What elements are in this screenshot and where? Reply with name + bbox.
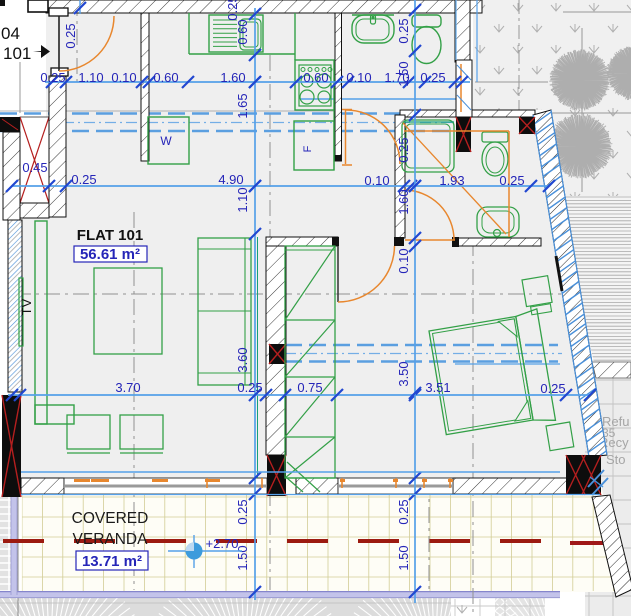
svg-text:1.50: 1.50: [396, 61, 411, 86]
svg-text:1.50: 1.50: [396, 545, 411, 570]
svg-text:1.10: 1.10: [235, 187, 250, 212]
svg-text:VERANDA: VERANDA: [73, 531, 149, 548]
svg-text:0.75: 0.75: [297, 380, 322, 395]
svg-text:TV: TV: [19, 298, 34, 315]
svg-text:0.25: 0.25: [237, 380, 262, 395]
svg-text:0.60: 0.60: [153, 70, 178, 85]
svg-text:56.61 m²: 56.61 m²: [80, 246, 140, 263]
svg-text:0.25: 0.25: [40, 70, 65, 85]
svg-text:0.25: 0.25: [499, 173, 524, 188]
svg-text:0.60: 0.60: [235, 19, 250, 44]
svg-text:1.60: 1.60: [396, 189, 411, 214]
svg-text:+2.70: +2.70: [206, 536, 239, 551]
svg-text:0.60: 0.60: [303, 70, 328, 85]
svg-text:1.10: 1.10: [78, 70, 103, 85]
svg-text:FLAT 101: FLAT 101: [77, 227, 143, 244]
svg-text:0.10: 0.10: [346, 70, 371, 85]
svg-text:1.60: 1.60: [220, 70, 245, 85]
svg-text:0.25: 0.25: [396, 137, 411, 162]
svg-text:3.70: 3.70: [115, 380, 140, 395]
svg-text:3.51: 3.51: [425, 380, 450, 395]
svg-text:1.65: 1.65: [235, 93, 250, 118]
svg-text:0.25: 0.25: [420, 70, 445, 85]
svg-text:0.25: 0.25: [396, 499, 411, 524]
svg-text:3.50: 3.50: [396, 361, 411, 386]
svg-text:0.25: 0.25: [540, 381, 565, 396]
svg-text:101: 101: [3, 44, 31, 63]
svg-text:0.10: 0.10: [111, 70, 136, 85]
svg-text:0.10: 0.10: [396, 248, 411, 273]
svg-text:13.71 m²: 13.71 m²: [82, 553, 142, 570]
svg-text:1.93: 1.93: [439, 173, 464, 188]
svg-text:COVERED: COVERED: [72, 510, 149, 527]
svg-text:F: F: [302, 145, 314, 152]
svg-text:0.25: 0.25: [396, 18, 411, 43]
svg-text:4.90: 4.90: [218, 172, 243, 187]
svg-text:Sto: Sto: [606, 452, 626, 467]
svg-text:0.45: 0.45: [22, 160, 47, 175]
svg-text:0.25: 0.25: [63, 23, 78, 48]
svg-text:0.10: 0.10: [364, 173, 389, 188]
svg-text:0.25: 0.25: [225, 0, 240, 21]
svg-text:3.60: 3.60: [235, 347, 250, 372]
svg-text:0.25: 0.25: [235, 499, 250, 524]
svg-text:04: 04: [1, 24, 20, 43]
svg-text:W: W: [160, 134, 172, 148]
svg-text:0.25: 0.25: [71, 172, 96, 187]
